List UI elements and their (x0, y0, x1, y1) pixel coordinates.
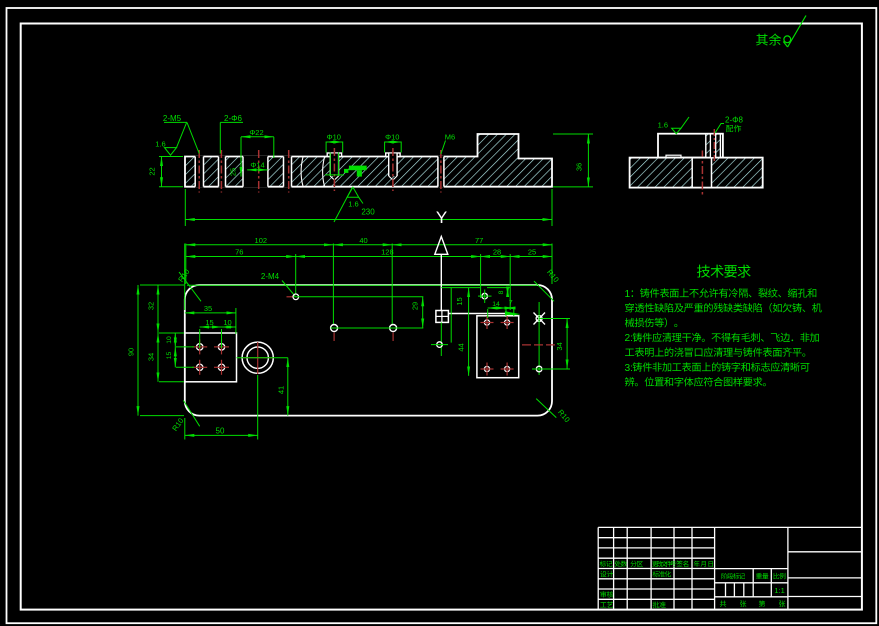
svg-text:10: 10 (166, 336, 173, 344)
svg-text:25: 25 (528, 248, 536, 257)
svg-text:10: 10 (223, 318, 231, 327)
svg-text:34: 34 (147, 353, 156, 361)
svg-text:1: 1 (625, 289, 631, 300)
svg-text:34: 34 (555, 342, 564, 350)
svg-text:14: 14 (492, 301, 500, 308)
svg-text:Y: Y (436, 208, 447, 227)
svg-text:50: 50 (216, 427, 225, 436)
svg-text:102: 102 (255, 236, 268, 245)
svg-text:230: 230 (361, 208, 375, 217)
svg-text:1:1: 1:1 (774, 586, 784, 595)
svg-text:2-M5: 2-M5 (163, 114, 182, 123)
svg-text:Φ14: Φ14 (250, 160, 264, 169)
svg-text:1.6: 1.6 (155, 140, 165, 149)
svg-text:3:: 3: (625, 363, 634, 374)
svg-text:Φ22: Φ22 (249, 128, 263, 137)
svg-text:15: 15 (166, 352, 173, 360)
svg-text:29: 29 (411, 302, 420, 310)
svg-text:40: 40 (359, 236, 367, 245)
svg-text:2-Φ8: 2-Φ8 (725, 116, 743, 125)
svg-text:2-M4: 2-M4 (261, 272, 280, 281)
svg-text:22: 22 (148, 167, 157, 175)
svg-text:35: 35 (204, 304, 212, 313)
svg-text:2:: 2: (625, 333, 634, 344)
svg-text:28: 28 (493, 248, 501, 257)
svg-text:41: 41 (277, 386, 286, 394)
svg-text:7: 7 (509, 299, 513, 306)
svg-text:15: 15 (205, 318, 213, 327)
svg-text:Φ10: Φ10 (327, 132, 341, 141)
svg-text:1.6: 1.6 (658, 121, 668, 130)
svg-text:1.6: 1.6 (348, 200, 358, 209)
svg-text:32: 32 (147, 302, 156, 310)
svg-text:90: 90 (127, 348, 136, 356)
svg-text:15: 15 (455, 297, 464, 305)
svg-text:2-Φ6: 2-Φ6 (224, 114, 242, 123)
svg-text:44: 44 (457, 343, 466, 351)
svg-text:25: 25 (229, 168, 238, 176)
svg-text:Φ10: Φ10 (385, 132, 399, 141)
svg-text:76: 76 (235, 248, 243, 257)
svg-text:M6: M6 (445, 132, 455, 141)
svg-text:8: 8 (498, 290, 505, 294)
svg-text:36: 36 (575, 163, 584, 171)
svg-text:77: 77 (475, 236, 483, 245)
